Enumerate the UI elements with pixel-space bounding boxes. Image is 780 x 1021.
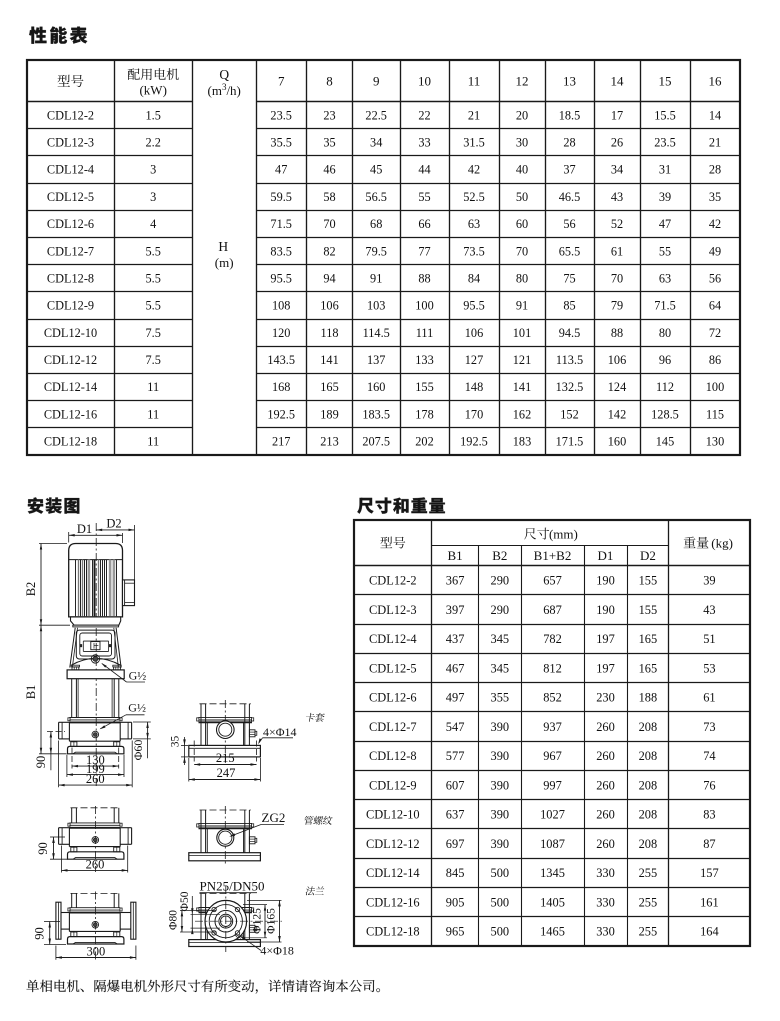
svg-text:77: 77 — [418, 244, 430, 258]
svg-text:35: 35 — [709, 190, 721, 204]
svg-text:74: 74 — [703, 749, 715, 763]
svg-text:42: 42 — [468, 163, 480, 177]
svg-text:197: 197 — [596, 632, 615, 646]
svg-text:40: 40 — [516, 163, 528, 177]
svg-text:84: 84 — [468, 271, 480, 285]
svg-text:208: 208 — [639, 778, 658, 792]
svg-text:D2: D2 — [106, 517, 121, 531]
svg-text:CDL12-7: CDL12-7 — [369, 720, 417, 734]
svg-text:CDL12-2: CDL12-2 — [47, 108, 94, 122]
svg-text:160: 160 — [367, 380, 385, 394]
svg-text:11: 11 — [147, 407, 159, 421]
svg-text:165: 165 — [639, 661, 658, 675]
svg-text:142: 142 — [608, 407, 626, 421]
svg-text:71.5: 71.5 — [654, 299, 676, 313]
svg-text:46: 46 — [323, 163, 335, 177]
svg-text:155: 155 — [415, 380, 433, 394]
svg-text:90: 90 — [34, 756, 48, 769]
svg-text:46.5: 46.5 — [559, 190, 581, 204]
svg-text:165: 165 — [639, 632, 658, 646]
svg-text:73: 73 — [703, 720, 715, 734]
svg-text:9: 9 — [373, 74, 380, 89]
svg-text:(m): (m) — [215, 255, 234, 270]
svg-text:124: 124 — [608, 380, 626, 394]
svg-text:500: 500 — [491, 895, 510, 909]
svg-text:168: 168 — [272, 380, 290, 394]
svg-text:217: 217 — [272, 435, 290, 449]
svg-text:Φ80: Φ80 — [167, 910, 179, 930]
svg-text:55: 55 — [659, 244, 671, 258]
svg-text:30: 30 — [516, 136, 528, 150]
svg-text:79: 79 — [611, 299, 623, 313]
svg-text:31: 31 — [659, 163, 671, 177]
svg-text:CDL12-6: CDL12-6 — [369, 691, 417, 705]
svg-text:178: 178 — [415, 407, 433, 421]
svg-text:88: 88 — [418, 271, 430, 285]
svg-text:39: 39 — [703, 574, 715, 588]
svg-text:1345: 1345 — [540, 866, 565, 880]
svg-text:132.5: 132.5 — [556, 380, 584, 394]
svg-text:160: 160 — [608, 435, 626, 449]
svg-text:247: 247 — [217, 766, 236, 780]
svg-text:65.5: 65.5 — [559, 244, 581, 258]
svg-text:260: 260 — [596, 778, 615, 792]
svg-text:547: 547 — [446, 720, 465, 734]
svg-text:56.5: 56.5 — [365, 190, 387, 204]
svg-text:390: 390 — [491, 808, 510, 822]
svg-text:83: 83 — [703, 808, 715, 822]
svg-text:91: 91 — [370, 271, 382, 285]
svg-text:CDL12-9: CDL12-9 — [47, 299, 94, 313]
svg-text:Φ125: Φ125 — [252, 908, 264, 934]
svg-text:Φ50: Φ50 — [179, 891, 191, 911]
svg-text:345: 345 — [491, 661, 510, 675]
svg-text:76: 76 — [703, 778, 715, 792]
svg-text:61: 61 — [703, 691, 715, 705]
svg-text:162: 162 — [513, 407, 531, 421]
svg-text:202: 202 — [415, 435, 433, 449]
svg-text:1465: 1465 — [540, 925, 565, 939]
svg-text:20: 20 — [516, 108, 528, 122]
svg-text:782: 782 — [543, 632, 562, 646]
svg-text:CDL12-6: CDL12-6 — [47, 217, 94, 231]
svg-text:208: 208 — [639, 720, 658, 734]
svg-text:3: 3 — [150, 163, 156, 177]
svg-text:260: 260 — [596, 808, 615, 822]
svg-text:15.5: 15.5 — [654, 108, 676, 122]
svg-text:CDL12-14: CDL12-14 — [44, 380, 97, 394]
svg-text:31.5: 31.5 — [463, 136, 485, 150]
svg-text:16: 16 — [709, 74, 723, 89]
svg-text:190: 190 — [596, 603, 615, 617]
svg-text:CDL12-4: CDL12-4 — [47, 163, 94, 177]
svg-text:4×Φ18: 4×Φ18 — [260, 944, 294, 958]
svg-text:88: 88 — [611, 326, 623, 340]
svg-text:80: 80 — [516, 271, 528, 285]
svg-text:390: 390 — [491, 720, 510, 734]
svg-text:44: 44 — [418, 163, 430, 177]
svg-text:11: 11 — [147, 380, 159, 394]
svg-text:23.5: 23.5 — [270, 108, 292, 122]
svg-text:260: 260 — [86, 857, 105, 871]
svg-text:73.5: 73.5 — [463, 244, 485, 258]
svg-text:208: 208 — [639, 749, 658, 763]
svg-text:CDL12-5: CDL12-5 — [47, 190, 94, 204]
svg-text:43: 43 — [611, 190, 623, 204]
svg-text:330: 330 — [596, 895, 615, 909]
svg-text:CDL12-8: CDL12-8 — [369, 749, 417, 763]
svg-text:ZG2: ZG2 — [262, 810, 286, 825]
svg-text:22: 22 — [418, 108, 430, 122]
svg-text:CDL12-16: CDL12-16 — [44, 407, 97, 421]
svg-text:45: 45 — [370, 163, 382, 177]
svg-text:120: 120 — [272, 326, 290, 340]
svg-text:7.5: 7.5 — [146, 353, 161, 367]
svg-text:90: 90 — [32, 927, 46, 940]
svg-text:637: 637 — [446, 808, 465, 822]
svg-text:35: 35 — [323, 136, 335, 150]
svg-text:171.5: 171.5 — [556, 435, 584, 449]
svg-text:1027: 1027 — [540, 808, 565, 822]
svg-text:100: 100 — [415, 299, 433, 313]
svg-text:B1: B1 — [448, 548, 463, 563]
svg-text:355: 355 — [491, 691, 510, 705]
svg-text:111: 111 — [416, 326, 434, 340]
svg-text:47: 47 — [659, 217, 671, 231]
svg-text:82: 82 — [323, 244, 335, 258]
svg-text:697: 697 — [446, 837, 465, 851]
svg-text:13: 13 — [563, 74, 576, 89]
svg-text:21: 21 — [468, 108, 480, 122]
svg-text:5.5: 5.5 — [146, 271, 161, 285]
svg-text:133: 133 — [415, 353, 433, 367]
svg-text:5.5: 5.5 — [146, 299, 161, 313]
svg-text:255: 255 — [639, 866, 658, 880]
svg-text:23.5: 23.5 — [654, 136, 676, 150]
svg-text:106: 106 — [465, 326, 483, 340]
svg-text:101: 101 — [513, 326, 531, 340]
svg-text:290: 290 — [491, 603, 510, 617]
svg-text:141: 141 — [320, 353, 338, 367]
svg-text:52.5: 52.5 — [463, 190, 485, 204]
svg-text:95.5: 95.5 — [463, 299, 485, 313]
svg-text:37: 37 — [563, 163, 575, 177]
svg-text:157: 157 — [700, 866, 719, 880]
svg-text:390: 390 — [491, 749, 510, 763]
svg-text:(kW): (kW) — [139, 83, 166, 98]
svg-text:11: 11 — [147, 435, 159, 449]
svg-text:CDL12-5: CDL12-5 — [369, 661, 417, 675]
svg-text:190: 190 — [596, 574, 615, 588]
svg-text:CDL12-10: CDL12-10 — [44, 326, 97, 340]
svg-text:230: 230 — [596, 691, 615, 705]
svg-text:11: 11 — [468, 74, 481, 89]
svg-text:26: 26 — [611, 136, 623, 150]
svg-text:215: 215 — [216, 751, 235, 765]
svg-text:18.5: 18.5 — [559, 108, 581, 122]
svg-text:35: 35 — [170, 736, 182, 748]
svg-text:905: 905 — [446, 895, 465, 909]
svg-text:91: 91 — [516, 299, 528, 313]
svg-text:255: 255 — [639, 925, 658, 939]
svg-text:207.5: 207.5 — [362, 435, 390, 449]
svg-text:437: 437 — [446, 632, 465, 646]
svg-text:148: 148 — [465, 380, 483, 394]
svg-text:B1: B1 — [24, 685, 38, 700]
svg-text:141: 141 — [513, 380, 531, 394]
svg-text:Φ60: Φ60 — [131, 740, 145, 761]
svg-text:467: 467 — [446, 661, 465, 675]
svg-text:75: 75 — [563, 271, 575, 285]
svg-text:607: 607 — [446, 778, 465, 792]
svg-text:165: 165 — [320, 380, 338, 394]
svg-text:68: 68 — [370, 217, 382, 231]
svg-text:197: 197 — [596, 661, 615, 675]
svg-text:83.5: 83.5 — [270, 244, 292, 258]
svg-text:367: 367 — [446, 574, 465, 588]
svg-text:397: 397 — [446, 603, 465, 617]
svg-text:80: 80 — [659, 326, 671, 340]
svg-text:55: 55 — [418, 190, 430, 204]
svg-text:50: 50 — [516, 190, 528, 204]
svg-text:94: 94 — [323, 271, 335, 285]
svg-text:(kg): (kg) — [711, 536, 733, 551]
svg-text:106: 106 — [320, 299, 338, 313]
svg-text:152: 152 — [560, 407, 578, 421]
svg-text:155: 155 — [639, 603, 658, 617]
svg-text:5.5: 5.5 — [146, 244, 161, 258]
svg-text:161: 161 — [700, 895, 719, 909]
svg-text:7: 7 — [278, 74, 285, 89]
svg-text:170: 170 — [465, 407, 483, 421]
svg-text:14: 14 — [611, 74, 625, 89]
svg-text:260: 260 — [596, 749, 615, 763]
svg-text:CDL12-9: CDL12-9 — [369, 778, 417, 792]
svg-text:59.5: 59.5 — [270, 190, 292, 204]
svg-text:72: 72 — [709, 326, 721, 340]
svg-text:15: 15 — [659, 74, 672, 89]
svg-text:3: 3 — [150, 190, 156, 204]
svg-text:56: 56 — [709, 271, 721, 285]
svg-text:145: 145 — [656, 435, 674, 449]
svg-text:965: 965 — [446, 925, 465, 939]
svg-text:90: 90 — [36, 842, 50, 855]
svg-text:28: 28 — [709, 163, 721, 177]
svg-text:95.5: 95.5 — [270, 271, 292, 285]
svg-text:CDL12-7: CDL12-7 — [47, 244, 94, 258]
svg-text:CDL12-12: CDL12-12 — [366, 837, 420, 851]
svg-text:CDL12-8: CDL12-8 — [47, 271, 94, 285]
svg-text:100: 100 — [706, 380, 724, 394]
svg-text:1405: 1405 — [540, 895, 565, 909]
svg-text:60: 60 — [516, 217, 528, 231]
svg-text:D2: D2 — [640, 548, 656, 563]
svg-text:49: 49 — [709, 244, 721, 258]
svg-text:390: 390 — [491, 778, 510, 792]
svg-text:43: 43 — [703, 603, 715, 617]
svg-text:208: 208 — [639, 837, 658, 851]
svg-text:8: 8 — [326, 74, 333, 89]
svg-text:42: 42 — [709, 217, 721, 231]
svg-text:108: 108 — [272, 299, 290, 313]
svg-text:113.5: 113.5 — [556, 353, 583, 367]
svg-text:70: 70 — [323, 217, 335, 231]
svg-text:687: 687 — [543, 603, 562, 617]
svg-text:66: 66 — [418, 217, 430, 231]
svg-text:CDL12-14: CDL12-14 — [366, 866, 420, 880]
svg-text:(mm): (mm) — [549, 527, 578, 542]
svg-text:345: 345 — [491, 632, 510, 646]
svg-text:35.5: 35.5 — [270, 136, 292, 150]
svg-text:967: 967 — [543, 749, 562, 763]
svg-text:Φ165: Φ165 — [266, 908, 278, 934]
svg-text:70: 70 — [516, 244, 528, 258]
svg-text:79.5: 79.5 — [365, 244, 387, 258]
svg-text:118: 118 — [321, 326, 339, 340]
svg-text:64: 64 — [709, 299, 721, 313]
svg-text:192.5: 192.5 — [460, 435, 488, 449]
svg-text:G½: G½ — [129, 669, 147, 683]
svg-text:497: 497 — [446, 691, 465, 705]
svg-text:71.5: 71.5 — [270, 217, 292, 231]
svg-text:51: 51 — [703, 632, 715, 646]
svg-text:500: 500 — [491, 866, 510, 880]
svg-text:21: 21 — [709, 136, 721, 150]
svg-text:997: 997 — [543, 778, 562, 792]
svg-text:34: 34 — [370, 136, 382, 150]
svg-text:106: 106 — [608, 353, 626, 367]
svg-text:188: 188 — [639, 691, 658, 705]
svg-text:12: 12 — [516, 74, 529, 89]
svg-text:121: 121 — [513, 353, 531, 367]
svg-text:4: 4 — [150, 217, 156, 231]
svg-text:34: 34 — [611, 163, 623, 177]
svg-text:192.5: 192.5 — [267, 407, 295, 421]
svg-text:330: 330 — [596, 925, 615, 939]
svg-text:300: 300 — [87, 944, 106, 958]
svg-text:85: 85 — [563, 299, 575, 313]
svg-text:128.5: 128.5 — [651, 407, 679, 421]
svg-text:1.5: 1.5 — [146, 108, 161, 122]
svg-text:260: 260 — [596, 720, 615, 734]
svg-text:23: 23 — [323, 108, 335, 122]
svg-text:114.5: 114.5 — [363, 326, 390, 340]
svg-text:53: 53 — [703, 661, 715, 675]
svg-text:1087: 1087 — [540, 837, 565, 851]
svg-text:130: 130 — [706, 435, 724, 449]
svg-text:143.5: 143.5 — [267, 353, 295, 367]
svg-text:D1: D1 — [598, 548, 614, 563]
svg-text:D1: D1 — [77, 522, 92, 536]
svg-text:577: 577 — [446, 749, 465, 763]
svg-text:14: 14 — [709, 108, 721, 122]
svg-text:17: 17 — [611, 108, 623, 122]
svg-text:260: 260 — [86, 772, 105, 786]
svg-text:B1+B2: B1+B2 — [534, 548, 572, 563]
svg-text:22.5: 22.5 — [365, 108, 387, 122]
svg-text:CDL12-18: CDL12-18 — [44, 435, 97, 449]
svg-text:CDL12-2: CDL12-2 — [369, 574, 417, 588]
svg-text:86: 86 — [709, 353, 721, 367]
svg-text:87: 87 — [703, 837, 715, 851]
svg-text:183: 183 — [513, 435, 531, 449]
svg-text:61: 61 — [611, 244, 623, 258]
svg-text:183.5: 183.5 — [362, 407, 390, 421]
svg-text:CDL12-3: CDL12-3 — [47, 136, 94, 150]
svg-text:CDL12-16: CDL12-16 — [366, 895, 420, 909]
svg-text:657: 657 — [543, 574, 562, 588]
svg-text:33: 33 — [418, 136, 430, 150]
svg-text:28: 28 — [563, 136, 575, 150]
svg-text:63: 63 — [468, 217, 480, 231]
svg-text:58: 58 — [323, 190, 335, 204]
svg-text:255: 255 — [639, 895, 658, 909]
svg-text:56: 56 — [563, 217, 575, 231]
svg-text:127: 127 — [465, 353, 483, 367]
svg-text:2.2: 2.2 — [146, 136, 161, 150]
svg-text:103: 103 — [367, 299, 385, 313]
svg-text:852: 852 — [543, 691, 562, 705]
svg-text:CDL12-12: CDL12-12 — [44, 353, 97, 367]
svg-text:70: 70 — [611, 271, 623, 285]
svg-text:CDL12-18: CDL12-18 — [366, 925, 420, 939]
svg-text:115: 115 — [706, 407, 724, 421]
svg-text:500: 500 — [491, 925, 510, 939]
svg-text:290: 290 — [491, 574, 510, 588]
svg-text:164: 164 — [700, 925, 719, 939]
svg-text:B2: B2 — [24, 582, 38, 597]
svg-text:63: 63 — [659, 271, 671, 285]
svg-text:189: 189 — [320, 407, 338, 421]
svg-text:937: 937 — [543, 720, 562, 734]
svg-text:H: H — [218, 239, 228, 254]
svg-text:213: 213 — [320, 435, 338, 449]
svg-text:4×Φ14: 4×Φ14 — [263, 725, 297, 739]
svg-text:CDL12-3: CDL12-3 — [369, 603, 417, 617]
svg-text:812: 812 — [543, 661, 562, 675]
svg-text:CDL12-4: CDL12-4 — [369, 632, 417, 646]
svg-text:260: 260 — [596, 837, 615, 851]
svg-text:155: 155 — [639, 574, 658, 588]
svg-text:94.5: 94.5 — [559, 326, 581, 340]
svg-text:G½: G½ — [128, 701, 146, 715]
svg-text:47: 47 — [275, 163, 287, 177]
svg-text:137: 137 — [367, 353, 385, 367]
svg-text:330: 330 — [596, 866, 615, 880]
svg-text:845: 845 — [446, 866, 465, 880]
svg-text:96: 96 — [659, 353, 671, 367]
svg-text:7.5: 7.5 — [146, 326, 161, 340]
svg-text:PN25/DN50: PN25/DN50 — [200, 879, 265, 894]
svg-text:CDL12-10: CDL12-10 — [366, 808, 420, 822]
svg-text:B2: B2 — [492, 548, 507, 563]
svg-text:39: 39 — [659, 190, 671, 204]
svg-text:10: 10 — [418, 74, 431, 89]
svg-text:Q: Q — [219, 67, 229, 82]
svg-text:112: 112 — [656, 380, 674, 394]
svg-text:390: 390 — [491, 837, 510, 851]
svg-text:52: 52 — [611, 217, 623, 231]
svg-text:208: 208 — [639, 808, 658, 822]
